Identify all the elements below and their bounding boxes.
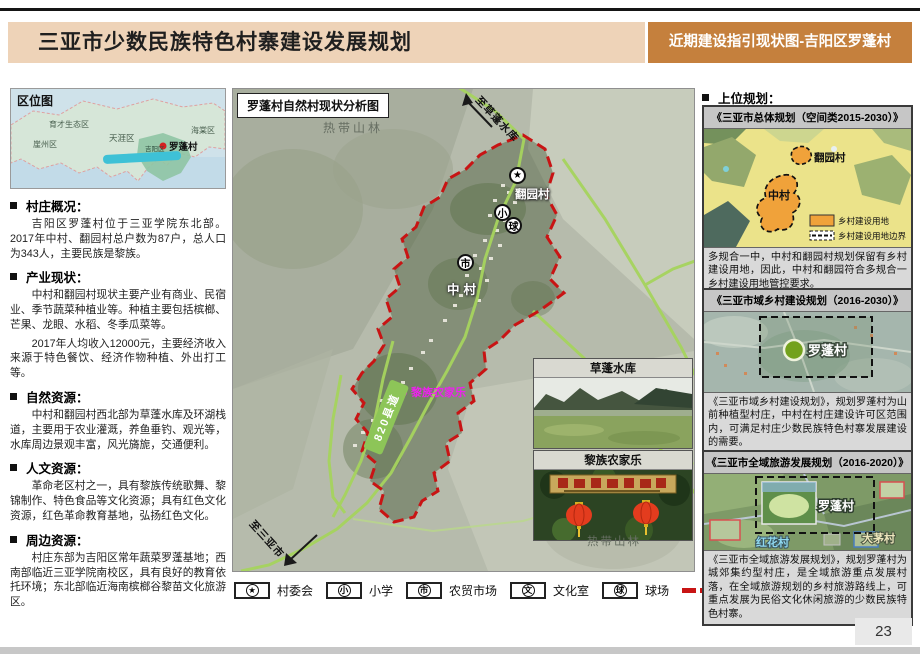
plan1-fanyuan-label: 翻园村	[814, 151, 846, 164]
market-glyph-icon: 市	[418, 584, 431, 597]
sign-calligraphy	[558, 478, 666, 488]
legend-item-court: 球 球场	[602, 582, 669, 599]
section-heading: 自然资源：	[26, 387, 89, 406]
region-label-yazhou: 崖州区	[33, 140, 57, 149]
market-marker: 市	[457, 254, 474, 271]
section-heading: 周边资源：	[26, 530, 89, 549]
plan-box-title: 《三亚市总体规划（空间类2015-2030）》	[704, 107, 911, 129]
reservoir-photo	[534, 378, 692, 448]
village-committee-marker: ★	[509, 167, 526, 184]
section-surroundings: 周边资源： 村庄东部为吉阳区常年蔬菜罗蓬基地；西南部临近三亚学院南校区，具有良好…	[10, 530, 226, 610]
plan-box-title: 《三亚市全域旅游发展规划（2016-2020）》	[704, 452, 911, 474]
left-sidebar: 育才生态区 崖州区 天涯区 海棠区 吉阳区 罗蓬村 区位图 村庄概况： 吉阳区罗…	[10, 88, 226, 614]
right-sidebar: 上位规划： 《三亚市总体规划（空间类2015-2030）》 翻园村 中村 乡村	[702, 88, 913, 648]
section-paragraph: 中村和翻园村现状主要产业有商业、民宿业、季节蔬菜种植业等。种植主要包括槟榔、芒果…	[10, 288, 226, 332]
plan-box-rural-construction: 《三亚市域乡村建设规划（2016-2030）》 罗蓬村 《三亚市域乡村建设规划》…	[702, 288, 913, 455]
legend-label: 村委会	[277, 582, 313, 599]
square-bullet-icon	[10, 536, 17, 543]
region-label-tianya: 天涯区	[109, 133, 135, 143]
plan1-legend-boundary: 乡村建设用地边界	[838, 231, 907, 241]
section-nature: 自然资源： 中村和翻园村西北部为草蓬水库及环湖栈道，主要用于农业灌溉，养鱼垂钓、…	[10, 387, 226, 452]
reservoir-photo-title: 草蓬水库	[534, 359, 692, 378]
village-location-label: 罗蓬村	[169, 141, 198, 153]
map-legend: ★ 村委会 小 小学 市 农贸市场 文 文化室 球 球场 自然村范围	[234, 577, 704, 603]
plan-box-master-plan: 《三亚市总体规划（空间类2015-2030）》 翻园村 中村 乡村建设用地	[702, 105, 913, 296]
culture-legend-icon: 文	[510, 582, 546, 599]
square-bullet-icon	[10, 273, 17, 280]
forest-label-bottom: 热带山林	[587, 533, 641, 549]
legend-item-market: 市 农贸市场	[406, 582, 497, 599]
court-legend-icon: 球	[602, 582, 638, 599]
plan1-zhongcun-label: 中村	[768, 188, 790, 202]
section-paragraph: 中村和翻园村西北部为草蓬水库及环湖栈道，主要用于农业灌溉，养鱼垂钓、观光等，水库…	[10, 408, 226, 452]
section-paragraph: 2017年人均收入12000元，主要经济收入来源于特色餐饮、经济作物种植、外出打…	[10, 337, 226, 381]
region-label-haitang: 海棠区	[191, 125, 215, 135]
agritainment-text: 黎族农家乐	[411, 384, 466, 400]
square-bullet-icon	[10, 202, 17, 209]
section-village-overview: 村庄概况： 吉阳区罗蓬村位于三亚学院东北部。2017年中村、翻园村总户数为87户…	[10, 196, 226, 261]
section-culture: 人文资源： 革命老区村之一，具有黎族传统歌舞、黎锦制作、特色食品等文化资源；具有…	[10, 458, 226, 523]
section-heading: 人文资源：	[26, 458, 89, 477]
square-bullet-icon	[10, 464, 17, 471]
legend-item-committee: ★ 村委会	[234, 582, 313, 599]
star-icon: ★	[246, 584, 259, 597]
plan3-damao-label: 大茅村	[862, 531, 895, 545]
map-title: 罗蓬村自然村现状分析图	[237, 93, 389, 118]
plan-box-title: 《三亚市域乡村建设规划（2016-2030）》	[704, 290, 911, 312]
section-industry: 产业现状： 中村和翻园村现状主要产业有商业、民宿业、季节蔬菜种植业等。种植主要包…	[10, 267, 226, 381]
legend-label: 农贸市场	[449, 582, 497, 599]
plan2-luopeng-label: 罗蓬村	[808, 343, 847, 358]
legend-label: 球场	[645, 582, 669, 599]
market-legend-icon: 市	[406, 582, 442, 599]
plan1-legend-land: 乡村建设用地	[838, 216, 890, 226]
agritainment-photo-title: 黎族农家乐	[534, 451, 692, 470]
info-sections: 村庄概况： 吉阳区罗蓬村位于三亚学院东北部。2017年中村、翻园村总户数为87户…	[10, 196, 226, 610]
section-paragraph: 革命老区村之一，具有黎族传统歌舞、黎锦制作、特色食品等文化资源；具有红色文化资源…	[10, 479, 226, 523]
region-label-jiyang: 吉阳区	[145, 144, 165, 153]
legend-item-culture: 文 文化室	[510, 582, 589, 599]
legend-label: 文化室	[553, 582, 589, 599]
legend-label: 小学	[369, 582, 393, 599]
location-map-title: 区位图	[17, 92, 53, 109]
tourism-plan-map: 罗蓬村 红花村 大茅村	[704, 474, 911, 550]
page-subtitle: 近期建设指引现状图-吉阳区罗蓬村	[648, 22, 912, 63]
school-legend-icon: 小	[326, 582, 362, 599]
plan3-honghua-label: 红花村	[756, 535, 789, 549]
fanyuan-village-label: 翻园村	[515, 186, 550, 202]
zhongcun-village-label: 中村	[447, 279, 480, 298]
section-heading: 村庄概况：	[26, 196, 89, 215]
agritainment-photo	[534, 470, 692, 540]
plan-box-caption: 《三亚市全域旅游发展规划》，规划罗蓬村为城郊集约型村庄，是全域旅游重点发展村落，…	[704, 550, 911, 624]
culture-glyph-icon: 文	[522, 584, 535, 597]
master-plan-map: 翻园村 中村 乡村建设用地 乡村建设用地边界	[704, 129, 911, 247]
page-number: 23	[855, 618, 912, 645]
agritainment-photo-inset: 黎族农家乐	[533, 450, 693, 541]
rural-plan-map: 罗蓬村	[704, 312, 911, 392]
committee-legend-icon: ★	[234, 582, 270, 599]
plan3-luopeng-label: 罗蓬村	[818, 498, 854, 513]
analysis-map: 罗蓬村自然村现状分析图 热带山林 至草蓬水库 ★ 翻园村 小 球 市 中村 黎族…	[232, 88, 695, 572]
bottom-rule	[0, 647, 920, 654]
legend-item-school: 小 小学	[326, 582, 393, 599]
school-glyph-icon: 小	[338, 584, 351, 597]
forest-label-top: 热带山林	[323, 119, 383, 136]
plan-box-tourism: 《三亚市全域旅游发展规划（2016-2020）》 罗蓬村 红花村 大茅村	[702, 450, 913, 626]
plan-box-caption: 《三亚市域乡村建设规划》，规划罗蓬村为山前种植型村庄，中村在村庄建设许可区范围内…	[704, 392, 911, 453]
square-bullet-icon	[702, 94, 709, 101]
ball-court-marker: 球	[505, 217, 522, 234]
section-heading: 产业现状：	[26, 267, 89, 286]
page-title: 三亚市少数民族特色村寨建设发展规划	[8, 22, 645, 63]
top-rule	[0, 8, 920, 11]
region-label-yucai: 育才生态区	[49, 119, 89, 129]
square-bullet-icon	[10, 393, 17, 400]
section-paragraph: 村庄东部为吉阳区常年蔬菜罗蓬基地；西南部临近三亚学院南校区，具有良好的教育依托环…	[10, 551, 226, 610]
section-paragraph: 吉阳区罗蓬村位于三亚学院东北部。2017年中村、翻园村总户数为87户，总人口为3…	[10, 217, 226, 261]
location-map: 育才生态区 崖州区 天涯区 海棠区 吉阳区 罗蓬村 区位图	[10, 88, 226, 189]
reservoir-photo-inset: 草蓬水库	[533, 358, 693, 449]
document-page: 三亚市少数民族特色村寨建设发展规划 近期建设指引现状图-吉阳区罗蓬村 育才生态区…	[0, 0, 920, 654]
court-glyph-icon: 球	[614, 584, 627, 597]
